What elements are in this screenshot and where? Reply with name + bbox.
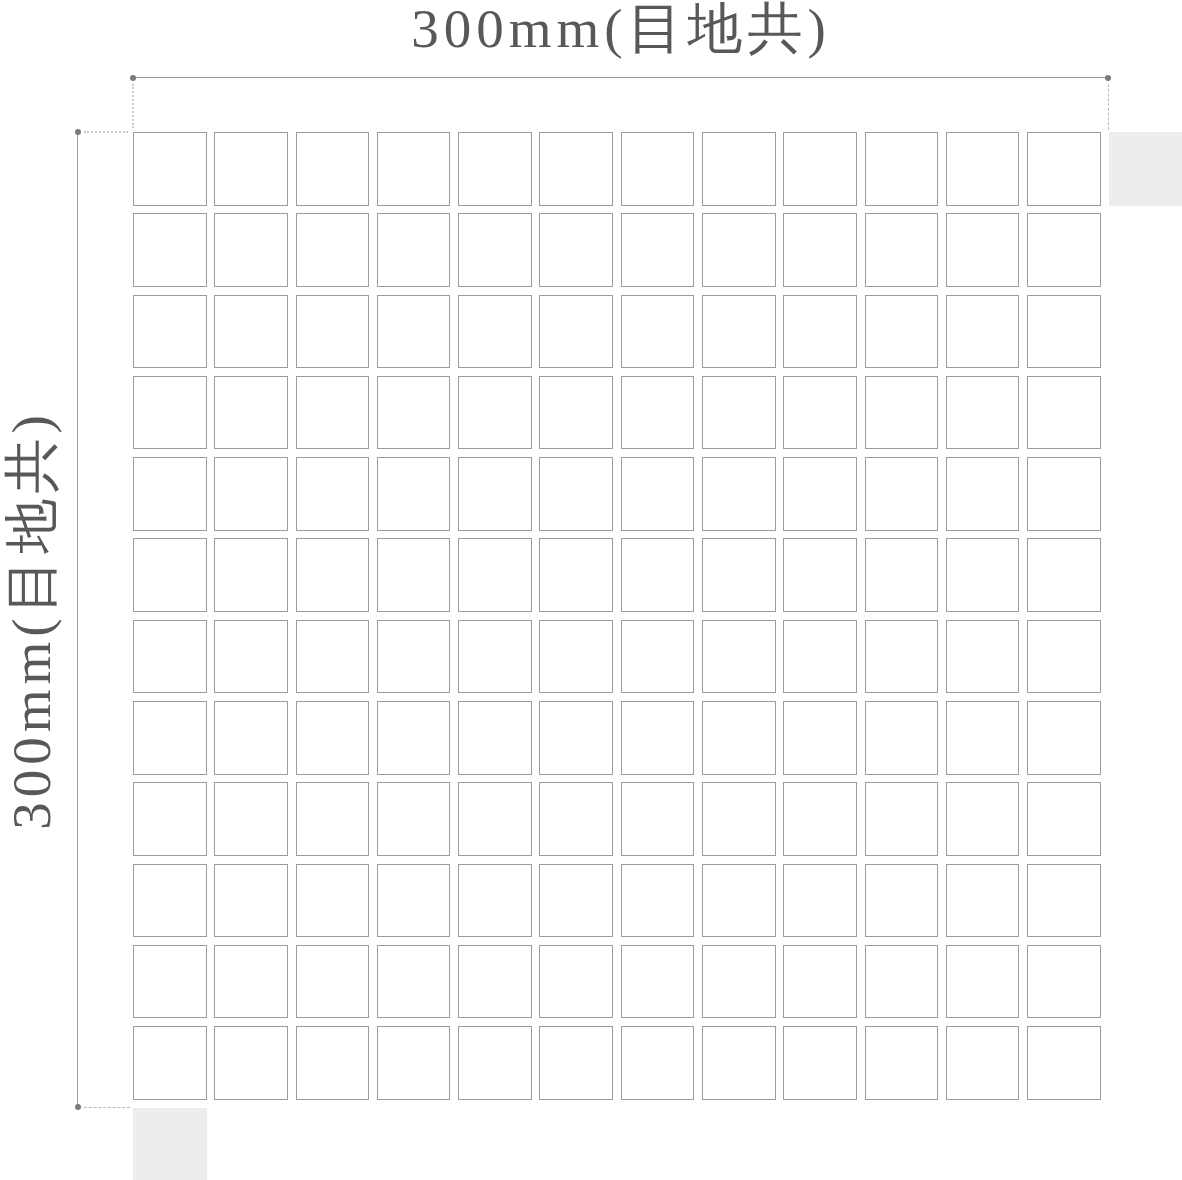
tile — [539, 295, 613, 369]
tile — [865, 620, 939, 694]
tile — [783, 213, 857, 287]
tile — [377, 620, 451, 694]
tile — [865, 701, 939, 775]
tile — [377, 213, 451, 287]
tile — [865, 213, 939, 287]
tile — [865, 1026, 939, 1100]
vertical-dimension-line — [77, 132, 78, 1108]
tile — [458, 538, 532, 612]
tile — [621, 457, 695, 531]
tile — [539, 945, 613, 1019]
extension-line-top-left-vertical — [132, 84, 134, 128]
dimension-endpoint-dot — [75, 129, 81, 135]
tile — [539, 376, 613, 450]
tile — [458, 457, 532, 531]
tile — [1027, 132, 1101, 206]
tile — [377, 782, 451, 856]
tile — [946, 620, 1020, 694]
tile — [702, 620, 776, 694]
tile — [133, 538, 207, 612]
tile — [133, 376, 207, 450]
tile — [214, 132, 288, 206]
tile — [133, 213, 207, 287]
tile — [1027, 457, 1101, 531]
tile — [621, 213, 695, 287]
tile — [539, 538, 613, 612]
tile — [783, 1026, 857, 1100]
tile — [865, 945, 939, 1019]
tile — [296, 620, 370, 694]
tile — [783, 620, 857, 694]
tile — [458, 782, 532, 856]
extension-line-bottom-left-horizontal — [84, 1107, 130, 1108]
tile — [621, 376, 695, 450]
tile — [1027, 376, 1101, 450]
tile — [458, 1026, 532, 1100]
tile — [946, 457, 1020, 531]
tile — [702, 782, 776, 856]
tile — [539, 620, 613, 694]
tile — [702, 864, 776, 938]
tile — [539, 213, 613, 287]
tile — [1027, 620, 1101, 694]
tile — [458, 620, 532, 694]
tile — [702, 1026, 776, 1100]
tile — [621, 701, 695, 775]
tile — [946, 701, 1020, 775]
tile — [702, 457, 776, 531]
ghost-tile-bottom-left — [133, 1108, 207, 1180]
tile — [946, 1026, 1020, 1100]
tile — [133, 701, 207, 775]
tile — [1027, 782, 1101, 856]
tile — [1027, 295, 1101, 369]
tile — [1027, 864, 1101, 938]
tile — [133, 864, 207, 938]
tile — [458, 945, 532, 1019]
tile — [946, 782, 1020, 856]
tile — [296, 782, 370, 856]
tile — [539, 457, 613, 531]
tile — [946, 376, 1020, 450]
tile — [458, 213, 532, 287]
tile — [865, 864, 939, 938]
tile — [783, 132, 857, 206]
tile — [865, 457, 939, 531]
tile — [783, 376, 857, 450]
tile — [946, 864, 1020, 938]
tile — [621, 620, 695, 694]
tile — [377, 538, 451, 612]
tile — [783, 782, 857, 856]
tile — [214, 538, 288, 612]
tile — [702, 295, 776, 369]
tile — [377, 295, 451, 369]
extension-line-left-top-horizontal — [84, 131, 128, 133]
tile — [133, 295, 207, 369]
tile — [702, 213, 776, 287]
tile — [865, 538, 939, 612]
tile — [214, 782, 288, 856]
tile — [296, 295, 370, 369]
tile — [621, 132, 695, 206]
tile — [296, 1026, 370, 1100]
tile — [946, 213, 1020, 287]
tile — [621, 538, 695, 612]
tile — [377, 457, 451, 531]
tile — [702, 701, 776, 775]
tile — [214, 457, 288, 531]
tile — [214, 864, 288, 938]
tile — [133, 945, 207, 1019]
tile — [133, 782, 207, 856]
tile — [296, 457, 370, 531]
tile — [1027, 701, 1101, 775]
tile — [539, 701, 613, 775]
tile — [377, 945, 451, 1019]
tile — [621, 295, 695, 369]
tile — [783, 945, 857, 1019]
tile — [621, 782, 695, 856]
tile — [783, 864, 857, 938]
tile — [702, 945, 776, 1019]
dimension-endpoint-dot — [1105, 75, 1111, 81]
tile — [296, 376, 370, 450]
tile — [539, 132, 613, 206]
tile — [458, 132, 532, 206]
tile — [458, 376, 532, 450]
tile — [539, 1026, 613, 1100]
ghost-tile-top-right — [1109, 132, 1182, 206]
tile — [296, 213, 370, 287]
tile — [214, 213, 288, 287]
tile — [621, 1026, 695, 1100]
tile-sheet-dimension-diagram: 300mm(目地共) 300mm(目地共) — [0, 0, 1182, 1180]
tile — [377, 864, 451, 938]
tile — [865, 132, 939, 206]
tile — [539, 782, 613, 856]
tile — [296, 538, 370, 612]
tile — [1027, 213, 1101, 287]
tile — [783, 538, 857, 612]
tile — [621, 945, 695, 1019]
tile — [133, 1026, 207, 1100]
tile — [783, 701, 857, 775]
tile — [621, 864, 695, 938]
dimension-endpoint-dot — [75, 1104, 81, 1110]
tile — [377, 376, 451, 450]
tile — [296, 132, 370, 206]
tile — [214, 620, 288, 694]
tile-grid — [133, 132, 1101, 1100]
tile — [946, 295, 1020, 369]
tile — [133, 457, 207, 531]
tile — [865, 295, 939, 369]
tile — [377, 132, 451, 206]
tile — [1027, 1026, 1101, 1100]
tile — [702, 376, 776, 450]
tile — [539, 864, 613, 938]
horizontal-dimension-label: 300mm(目地共) — [133, 0, 1109, 58]
tile — [458, 701, 532, 775]
vertical-dimension-label: 300mm(目地共) — [0, 132, 64, 1108]
extension-line-top-right-vertical — [1108, 84, 1109, 130]
tile — [702, 132, 776, 206]
tile — [214, 701, 288, 775]
tile — [214, 1026, 288, 1100]
tile — [377, 701, 451, 775]
dimension-endpoint-dot — [130, 75, 136, 81]
tile — [214, 376, 288, 450]
tile — [377, 1026, 451, 1100]
tile — [133, 620, 207, 694]
tile — [296, 945, 370, 1019]
tile — [1027, 538, 1101, 612]
tile — [1027, 945, 1101, 1019]
tile — [783, 457, 857, 531]
tile — [946, 538, 1020, 612]
tile — [865, 376, 939, 450]
horizontal-dimension-line — [133, 77, 1109, 78]
tile — [946, 132, 1020, 206]
tile — [296, 864, 370, 938]
tile — [783, 295, 857, 369]
tile — [296, 701, 370, 775]
tile — [865, 782, 939, 856]
tile — [702, 538, 776, 612]
tile — [946, 945, 1020, 1019]
tile — [214, 295, 288, 369]
tile — [458, 864, 532, 938]
tile — [214, 945, 288, 1019]
tile — [458, 295, 532, 369]
tile — [133, 132, 207, 206]
